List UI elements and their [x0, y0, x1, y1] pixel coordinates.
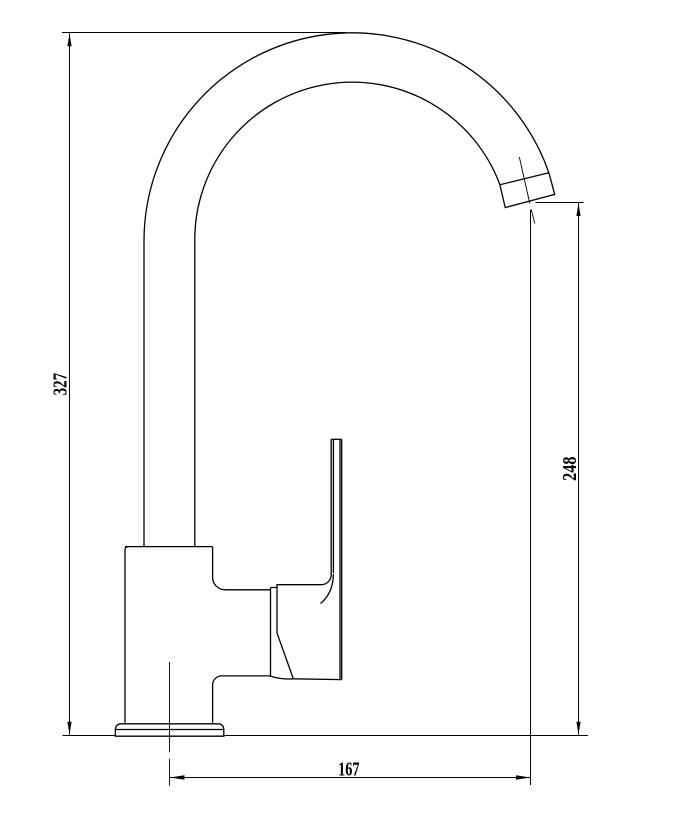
svg-text:327: 327	[50, 373, 72, 396]
svg-text:248: 248	[559, 457, 581, 481]
svg-text:167: 167	[338, 759, 359, 781]
